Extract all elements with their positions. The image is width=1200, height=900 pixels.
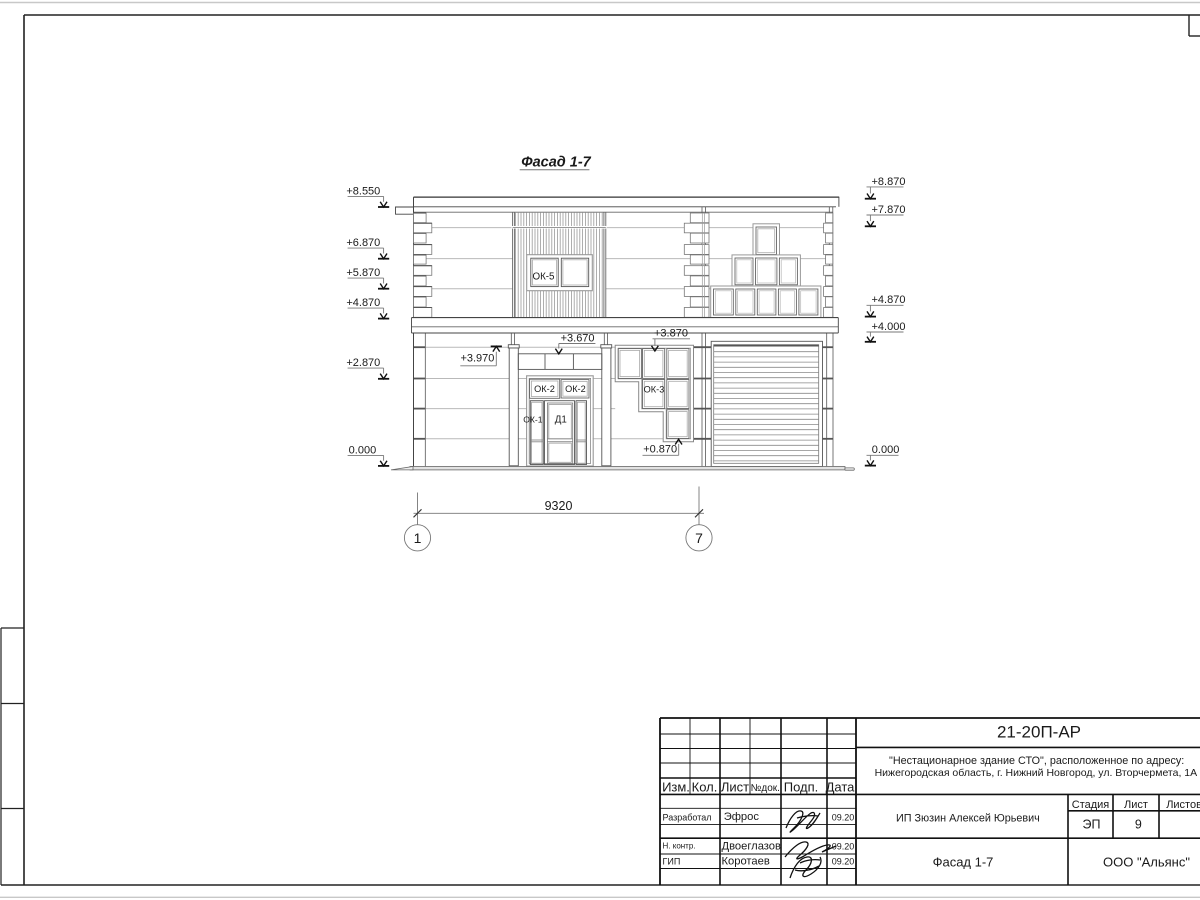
- svg-text:Коротаев: Коротаев: [722, 856, 770, 868]
- svg-text:№док.: №док.: [751, 783, 780, 794]
- svg-text:"Нестационарное здание СТО", р: "Нестационарное здание СТО", расположенн…: [889, 755, 1184, 767]
- svg-text:ОК-2: ОК-2: [565, 384, 586, 394]
- svg-text:+3.870: +3.870: [654, 328, 688, 340]
- svg-text:+4.000: +4.000: [872, 321, 906, 333]
- svg-text:Подп.: Подп.: [784, 780, 819, 795]
- svg-text:Стадия: Стадия: [1072, 799, 1110, 811]
- svg-text:9: 9: [1135, 817, 1142, 831]
- svg-text:ЭП: ЭП: [1083, 817, 1101, 831]
- svg-text:Двоеглазов: Двоеглазов: [722, 841, 782, 853]
- svg-text:7: 7: [695, 530, 703, 546]
- svg-text:+8.870: +8.870: [872, 176, 906, 188]
- svg-text:ОК-1: ОК-1: [523, 414, 543, 424]
- svg-text:Эфрос: Эфрос: [724, 811, 760, 823]
- svg-text:+3.970: +3.970: [460, 353, 494, 365]
- svg-text:0.000: 0.000: [349, 444, 377, 456]
- svg-text:+4.870: +4.870: [346, 297, 380, 309]
- svg-text:ИП Зюзин Алексей Юрьевич: ИП Зюзин Алексей Юрьевич: [896, 813, 1040, 825]
- svg-text:Фасад 1-7: Фасад 1-7: [933, 855, 994, 870]
- svg-text:09.20: 09.20: [832, 857, 855, 867]
- svg-text:+8.550: +8.550: [346, 185, 380, 197]
- svg-text:+7.870: +7.870: [872, 204, 906, 216]
- svg-text:Листов: Листов: [1166, 799, 1200, 811]
- svg-text:+3.670: +3.670: [561, 332, 595, 344]
- svg-text:Разработал: Разработал: [663, 813, 712, 823]
- svg-text:0.000: 0.000: [872, 444, 900, 456]
- svg-text:+2.870: +2.870: [346, 357, 380, 369]
- svg-text:+6.870: +6.870: [346, 237, 380, 249]
- svg-text:ГИП: ГИП: [663, 856, 681, 866]
- svg-text:Д1: Д1: [555, 414, 567, 425]
- svg-text:Дата: Дата: [826, 780, 856, 795]
- svg-text:Лист: Лист: [721, 780, 749, 795]
- svg-text:ОК-5: ОК-5: [532, 271, 555, 282]
- svg-text:Нижегородская область, г. Нижн: Нижегородская область, г. Нижний Новгоро…: [875, 767, 1198, 779]
- svg-text:09.20: 09.20: [832, 813, 855, 823]
- svg-text:+4.870: +4.870: [872, 294, 906, 306]
- svg-text:ОК-3: ОК-3: [644, 384, 665, 394]
- svg-text:Изм.: Изм.: [662, 780, 690, 795]
- svg-text:Кол.: Кол.: [692, 780, 718, 795]
- svg-text:Н. контр.: Н. контр.: [663, 842, 696, 851]
- svg-text:Фасад 1-7: Фасад 1-7: [521, 154, 591, 170]
- svg-text:9320: 9320: [545, 499, 573, 513]
- svg-text:+0.870: +0.870: [643, 443, 677, 455]
- svg-text:ОК-2: ОК-2: [534, 384, 555, 394]
- svg-text:+5.870: +5.870: [346, 267, 380, 279]
- svg-text:21-20П-АР: 21-20П-АР: [997, 723, 1081, 742]
- svg-text:Лист: Лист: [1124, 799, 1148, 811]
- svg-text:1: 1: [414, 530, 422, 546]
- svg-text:ООО "Альянс": ООО "Альянс": [1103, 855, 1190, 870]
